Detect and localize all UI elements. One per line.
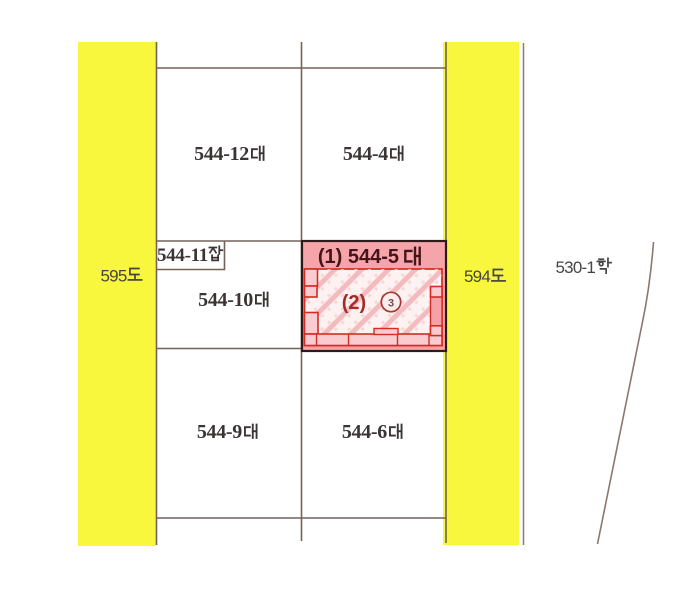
svg-text:544-9: 544-9	[197, 421, 242, 443]
svg-text:(1) 544-5: (1) 544-5	[318, 246, 399, 268]
svg-text:530-1: 530-1	[556, 258, 596, 277]
svg-text:594: 594	[464, 267, 490, 286]
svg-text:544-4: 544-4	[343, 143, 388, 165]
svg-text:544-10: 544-10	[198, 289, 253, 311]
svg-text:3: 3	[388, 298, 394, 310]
svg-text:544-6: 544-6	[342, 421, 387, 443]
svg-text:595: 595	[101, 267, 127, 286]
svg-text:544-12: 544-12	[194, 143, 249, 165]
svg-text:544-11: 544-11	[157, 245, 208, 266]
svg-text:(2): (2)	[342, 292, 366, 314]
